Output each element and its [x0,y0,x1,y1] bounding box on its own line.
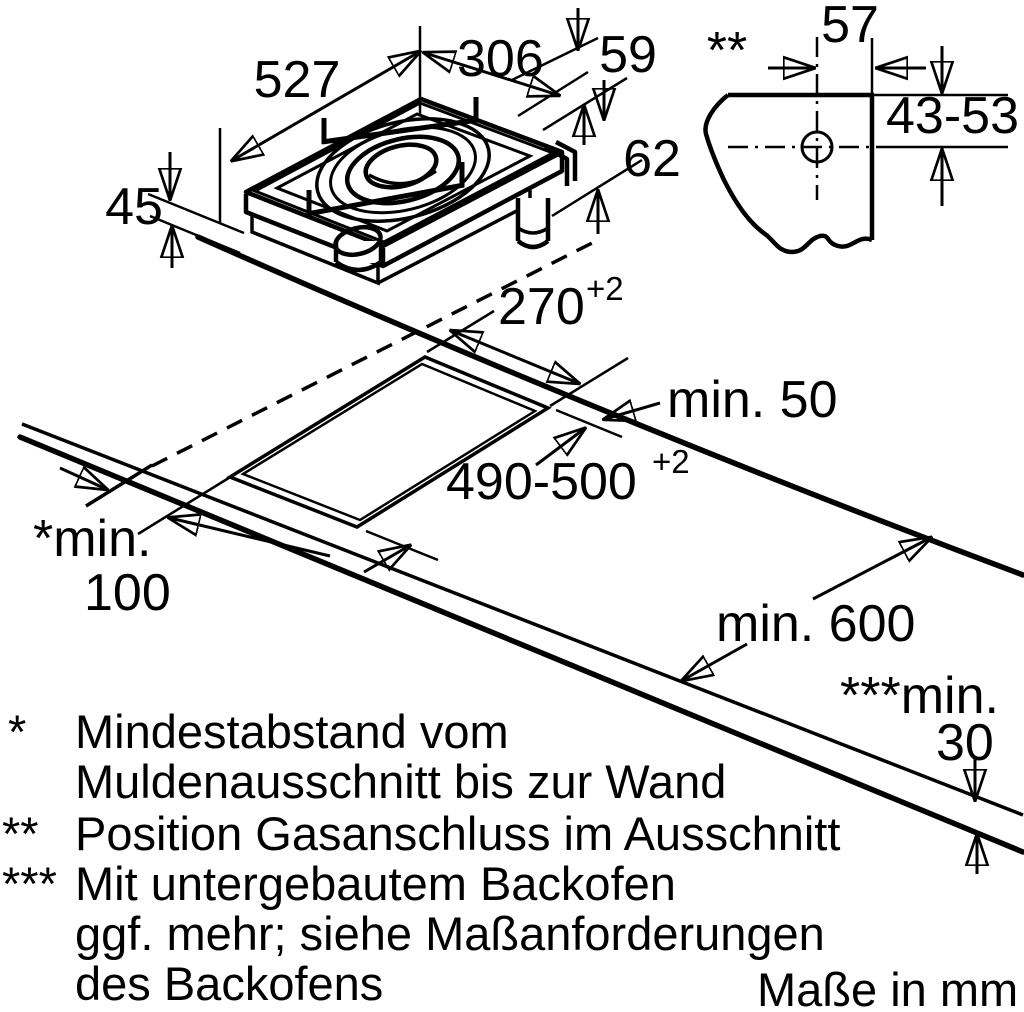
dim-59-label: 59 [599,26,657,84]
footnote-marker-1: * [8,705,26,758]
wall-dashed-line [152,243,592,466]
footnotes: * Mindestabstand vom Muldenausschnitt bi… [2,705,840,1010]
dim-4353-label: 43-53 [886,87,1019,145]
arrow-min100-cutout [170,518,330,556]
footnote-marker-3: *** [2,857,57,910]
dim-527-label: 527 [254,51,341,109]
gas-connection-detail: 57 ** 43-53 [706,0,1019,252]
dim-270-tolerance: +2 [586,270,624,307]
ext-line [366,531,438,560]
gas-position-marker: ** [707,22,747,80]
dim-306-label: 306 [457,30,544,88]
footnote-3-line-2: ggf. mehr; siehe Maßanforderungen [75,907,825,960]
footnote-1-line-2: Muldenausschnitt bis zur Wand [75,755,726,808]
footnote-1-line-1: Mindestabstand vom [75,705,509,758]
footnote-marker-2: ** [2,807,39,860]
dim-270-label: 270 [498,278,585,336]
units-note: Maße in mm [757,963,1018,1012]
dim-62-label: 62 [623,130,681,188]
ext-line [550,358,628,406]
footnote-3-line-1: Mit untergebautem Backofen [75,857,676,910]
dim-min50-label: min. 50 [667,371,838,429]
ext-line [138,476,232,534]
arrow-min600-back [813,538,930,599]
dim-490500-tolerance: +2 [652,443,690,480]
hob-isometric-view [148,97,575,283]
dim-490500-label: 490-500 [446,453,637,511]
ext-line [427,311,494,352]
arrow-min50 [605,403,660,419]
technical-drawing-page: 527 306 59 62 45 57 ** 43-5 [0,0,1024,1012]
dim-min30-value: 30 [936,714,994,772]
dim-45-label: 45 [105,178,163,236]
dim-min100-label: *min. [33,510,151,568]
footnote-2-line-1: Position Gasanschluss im Ausschnitt [75,807,840,860]
dim-57-label: 57 [821,0,879,54]
footnote-3-line-3: des Backofens [75,957,383,1010]
dim-min600-label: min. 600 [716,595,915,653]
hob-foot [517,198,549,247]
installation-diagram: 527 306 59 62 45 57 ** 43-5 [0,0,1024,1012]
dim-min100-value: 100 [84,564,171,622]
broken-out-edge [706,95,872,252]
